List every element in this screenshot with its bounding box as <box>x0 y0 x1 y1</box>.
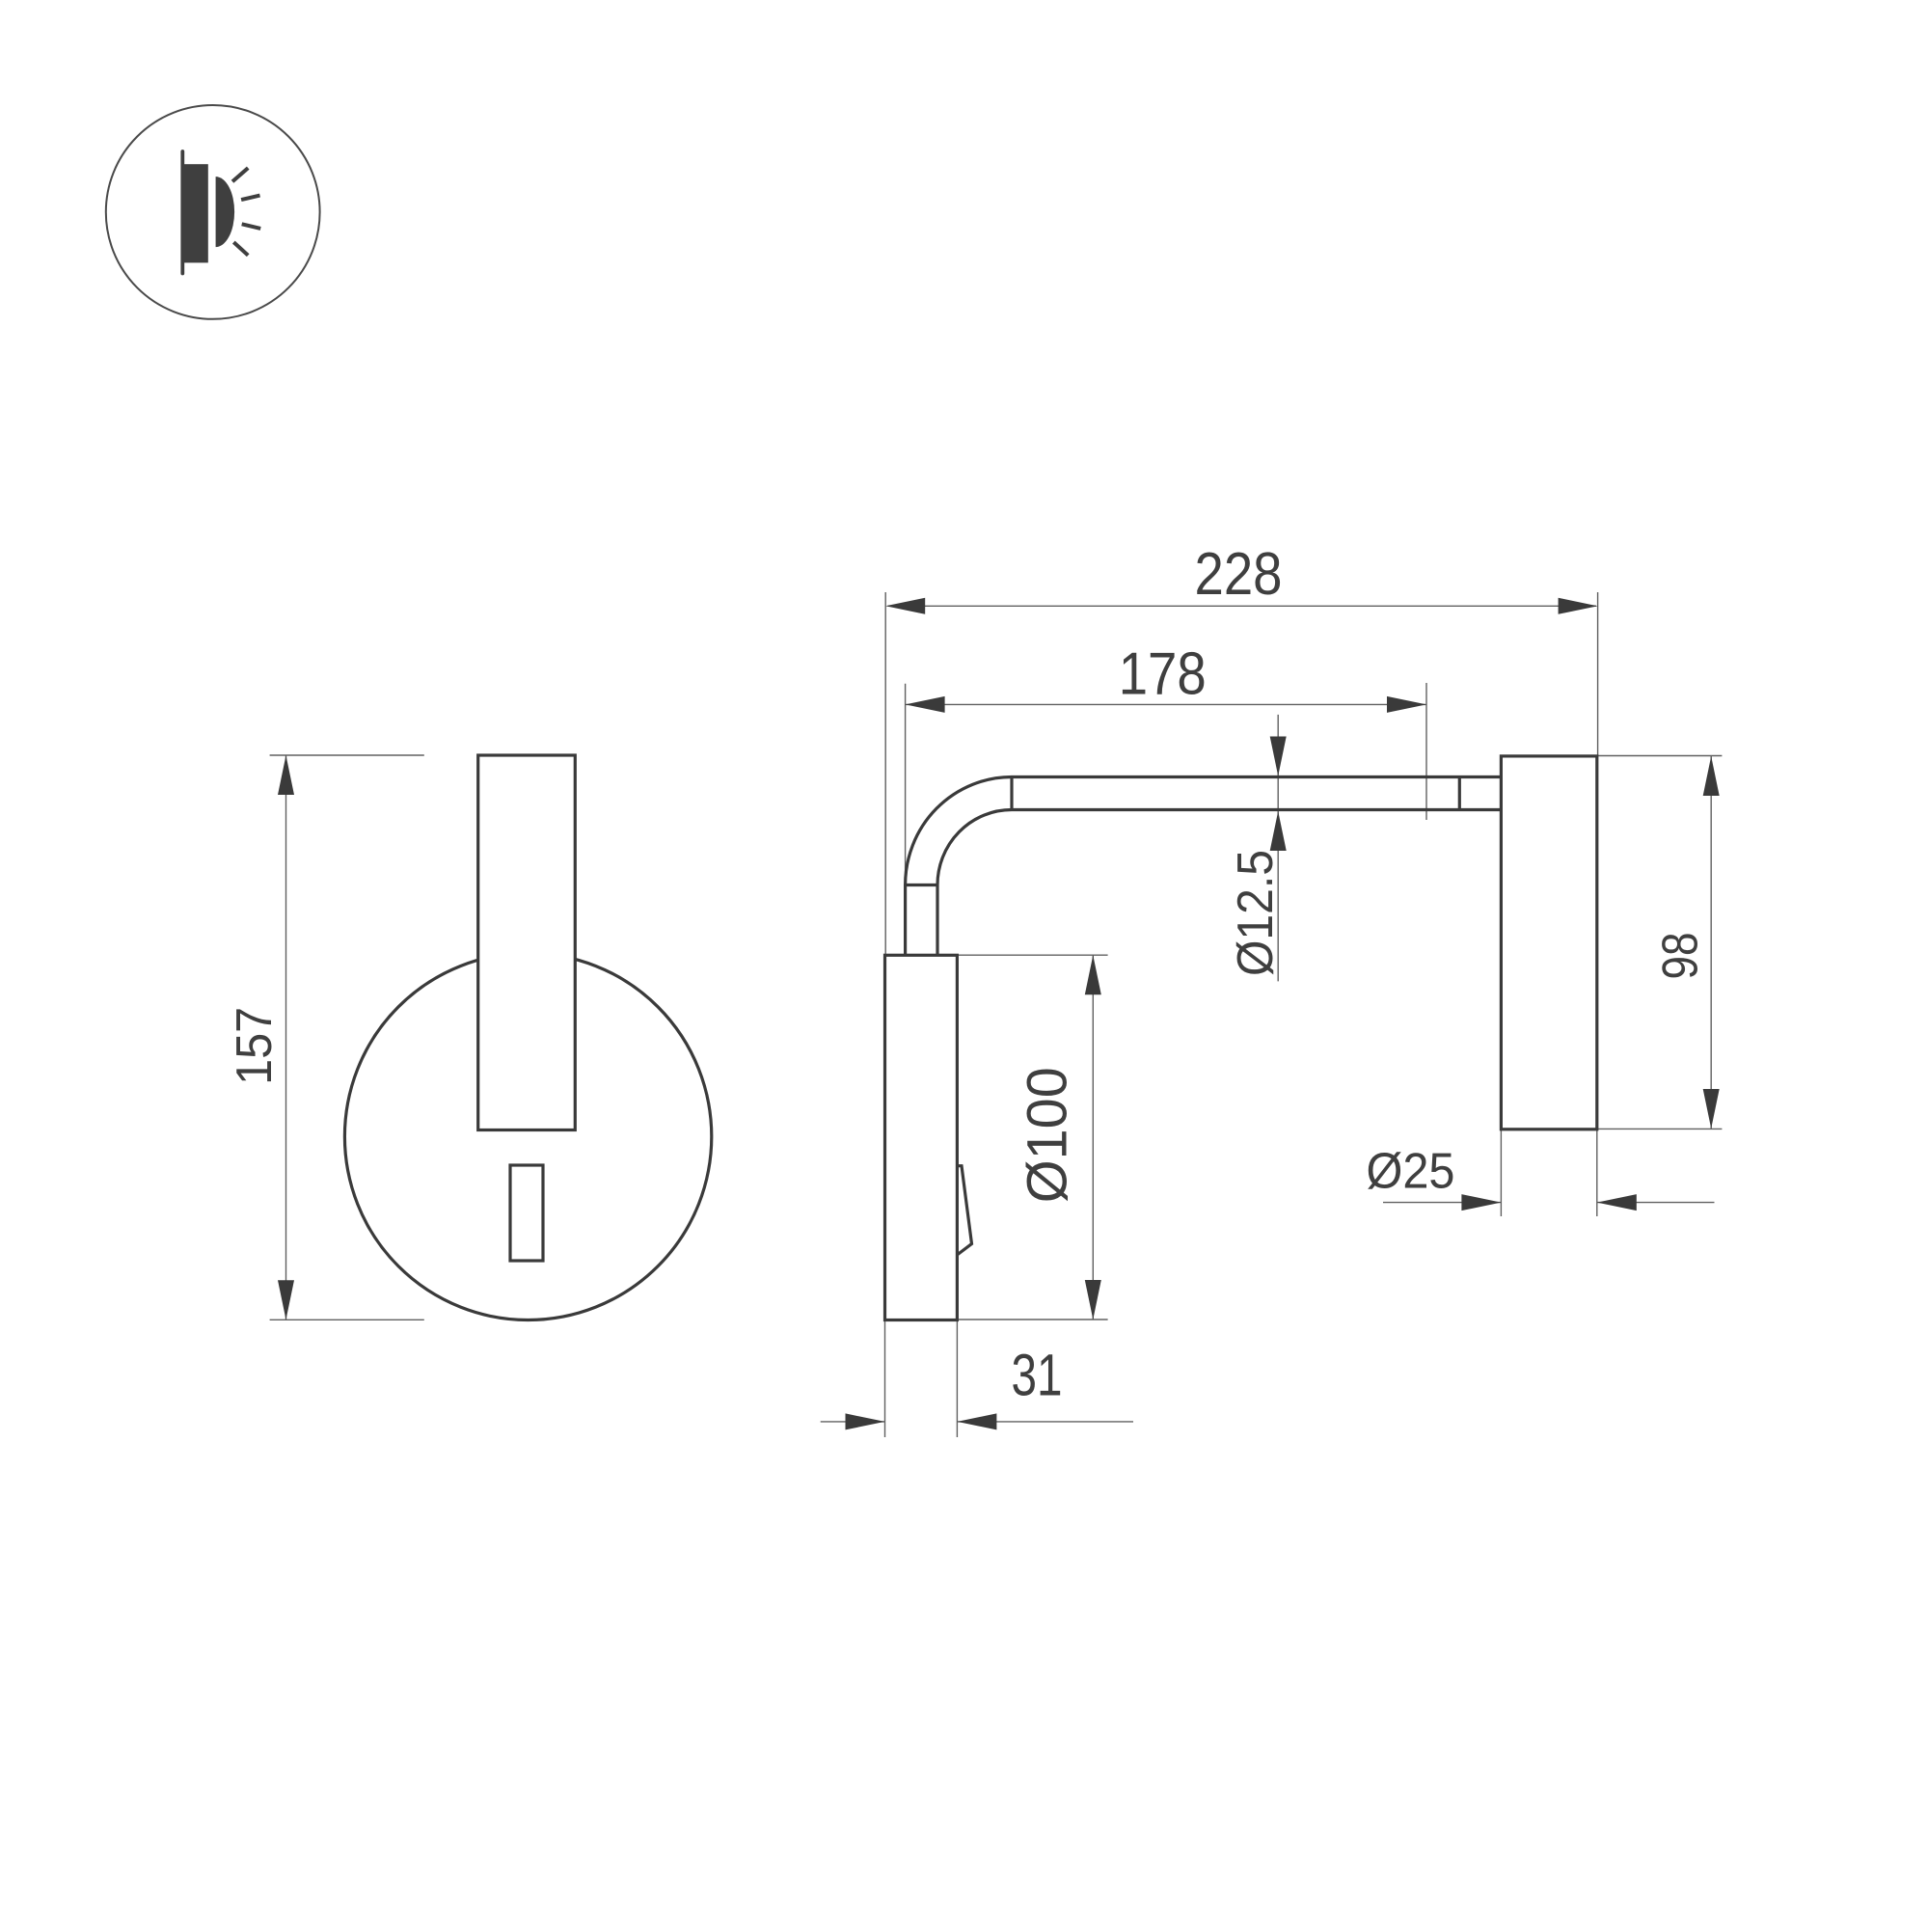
svg-text:178: 178 <box>1119 641 1207 708</box>
svg-text:Ø100: Ø100 <box>1017 1067 1079 1203</box>
svg-text:31: 31 <box>1012 1343 1063 1408</box>
svg-text:Ø12.5: Ø12.5 <box>1227 850 1283 976</box>
svg-text:157: 157 <box>226 1007 282 1085</box>
svg-text:Ø25: Ø25 <box>1367 1142 1455 1198</box>
svg-text:98: 98 <box>1652 933 1708 980</box>
svg-text:228: 228 <box>1195 541 1283 608</box>
